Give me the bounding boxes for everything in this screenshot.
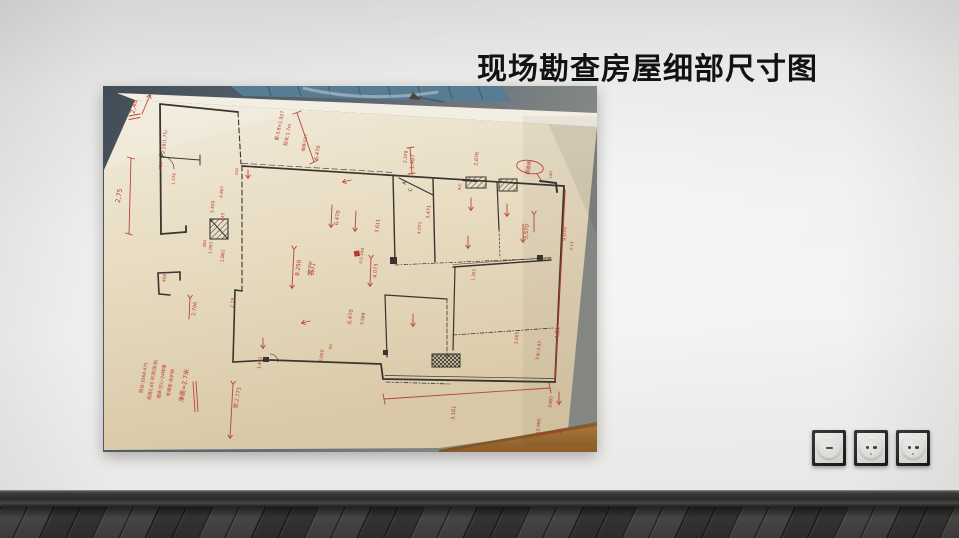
dimmer-knob-icon [812,430,846,466]
dim-label: 2465 [547,396,554,408]
dim-label: 4,81 [555,327,562,339]
dim-label: 450 [158,161,164,170]
baseboard [0,490,959,507]
dim-label: 300 [202,239,208,248]
slide: 现场勘查房屋细部尺寸图 [0,0,959,538]
wood-floor [0,507,959,538]
dim-label: 4.070 [562,227,569,242]
dim-label: 140 [548,170,554,178]
floorplan-photo: 2,48 2.18(1.75) 450 1.376 2,75 3.400 445… [103,86,597,452]
dim-label: 2.13 [569,241,575,251]
dim-label: 400 [162,273,169,282]
euro-socket-icon [854,430,888,466]
ac-mark: A/C [457,183,463,191]
dim-label: 318 [234,167,240,175]
page-title: 现场勘查房屋细部尺寸图 [477,44,818,88]
wall-outlet-group [812,430,930,466]
dim-label: 445 [220,212,226,221]
euro-socket-icon [896,430,930,466]
